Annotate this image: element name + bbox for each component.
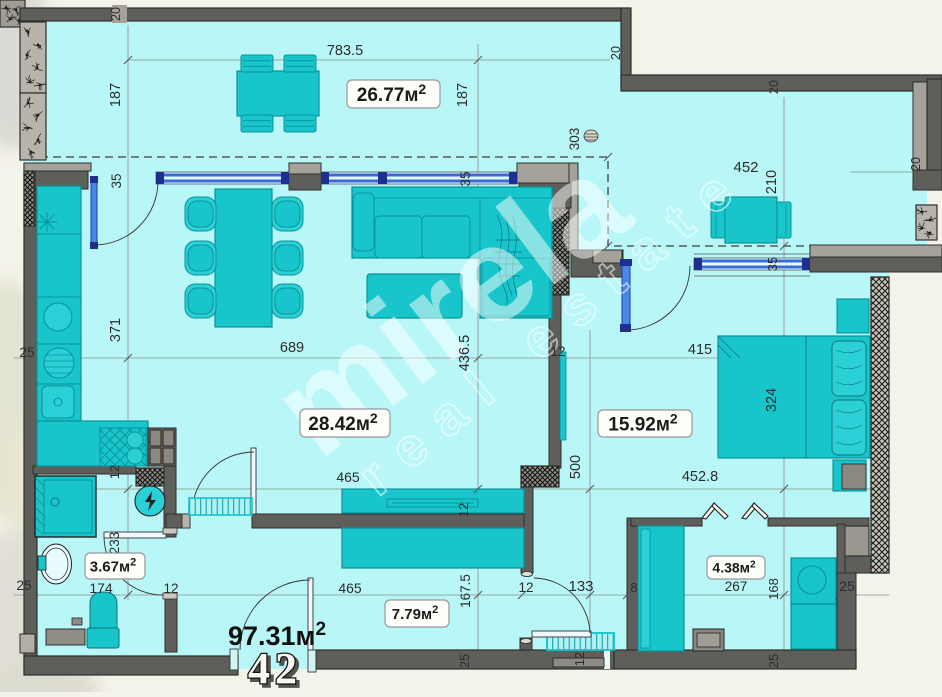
svg-text:324: 324 bbox=[764, 388, 780, 412]
svg-text:187: 187 bbox=[455, 83, 471, 107]
svg-text:12: 12 bbox=[572, 652, 587, 666]
svg-text:15.92м2: 15.92м2 bbox=[608, 410, 678, 435]
svg-text:783.5: 783.5 bbox=[327, 43, 363, 59]
svg-text:465: 465 bbox=[336, 469, 360, 485]
svg-text:415: 415 bbox=[688, 342, 712, 358]
svg-text:452.8: 452.8 bbox=[682, 469, 718, 485]
svg-text:303: 303 bbox=[567, 128, 582, 151]
svg-text:26.77м2: 26.77м2 bbox=[357, 81, 427, 106]
svg-text:267: 267 bbox=[725, 579, 748, 594]
svg-text:20: 20 bbox=[609, 46, 623, 60]
svg-text:500: 500 bbox=[568, 455, 584, 479]
svg-text:25: 25 bbox=[839, 578, 855, 594]
svg-text:20: 20 bbox=[109, 7, 123, 21]
svg-text:3.67м2: 3.67м2 bbox=[90, 556, 136, 575]
svg-text:168: 168 bbox=[766, 578, 781, 600]
svg-text:465: 465 bbox=[338, 580, 362, 596]
svg-text:174: 174 bbox=[89, 580, 113, 596]
svg-text:12: 12 bbox=[550, 344, 565, 359]
svg-text:20: 20 bbox=[767, 80, 781, 94]
svg-text:452: 452 bbox=[733, 159, 758, 176]
svg-text:7.79м2: 7.79м2 bbox=[392, 604, 438, 623]
svg-text:371: 371 bbox=[108, 318, 124, 342]
svg-text:25: 25 bbox=[16, 578, 31, 593]
svg-text:35: 35 bbox=[458, 171, 473, 186]
svg-text:35: 35 bbox=[109, 173, 124, 188]
svg-text:210: 210 bbox=[764, 170, 780, 194]
svg-text:25: 25 bbox=[19, 345, 34, 360]
svg-text:20: 20 bbox=[909, 157, 923, 171]
svg-text:133: 133 bbox=[568, 578, 593, 595]
svg-text:12: 12 bbox=[163, 581, 178, 596]
svg-text:8: 8 bbox=[630, 580, 637, 595]
svg-text:12: 12 bbox=[107, 465, 122, 479]
svg-text:25: 25 bbox=[457, 654, 472, 668]
svg-text:436.5: 436.5 bbox=[457, 335, 473, 371]
svg-text:167.5: 167.5 bbox=[458, 574, 473, 608]
svg-text:689: 689 bbox=[280, 340, 304, 356]
svg-text:4.38м2: 4.38м2 bbox=[712, 560, 756, 576]
svg-text:42: 42 bbox=[248, 644, 302, 692]
svg-text:12: 12 bbox=[518, 580, 533, 595]
svg-text:12: 12 bbox=[456, 503, 471, 517]
svg-text:233: 233 bbox=[107, 532, 122, 555]
svg-text:35: 35 bbox=[765, 257, 780, 271]
svg-text:187: 187 bbox=[108, 83, 124, 107]
svg-text:28.42м2: 28.42м2 bbox=[308, 410, 378, 435]
svg-text:25: 25 bbox=[766, 654, 781, 668]
